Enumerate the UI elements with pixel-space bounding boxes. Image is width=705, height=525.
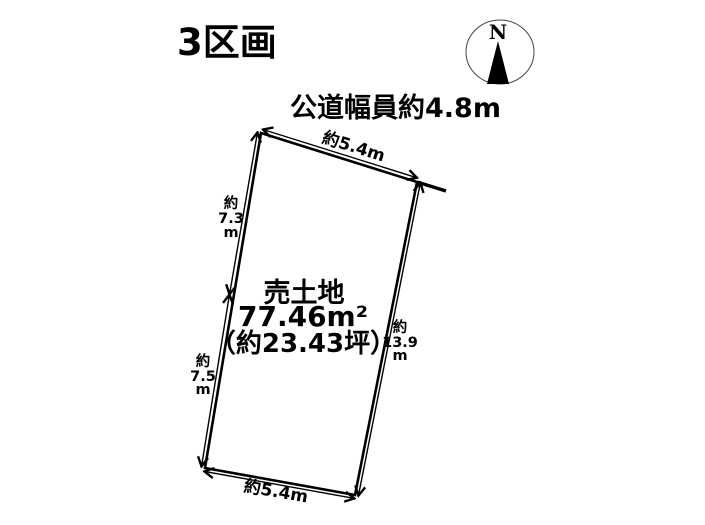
parcel-area-tsubo: （約23.43坪） — [210, 328, 396, 359]
road-edge-line — [417, 182, 446, 191]
parcel-label: 売土地 77.46m² （約23.43坪） — [210, 278, 396, 359]
compass-north-label: N — [489, 20, 507, 44]
land-plot-diagram: 3区画 公道幅員約4.8m N 約5.4m 約5.4m 約 7.3 m — [0, 0, 705, 525]
road-width-label: 公道幅員約4.8m — [290, 92, 501, 124]
compass-needle-icon — [487, 41, 509, 84]
dim-left-lower-line3: m — [195, 382, 210, 398]
compass: N — [466, 20, 534, 84]
dimension-label-top: 約5.4m — [320, 127, 388, 167]
page-title: 3区画 — [177, 21, 277, 64]
dim-left-upper-line3: m — [223, 225, 238, 241]
dim-left-upper-line1: 約 — [224, 194, 239, 212]
dim-left-lower-line1: 約 — [196, 352, 211, 370]
diagram-svg: 3区画 公道幅員約4.8m N 約5.4m 約5.4m 約 7.3 m — [0, 0, 705, 525]
